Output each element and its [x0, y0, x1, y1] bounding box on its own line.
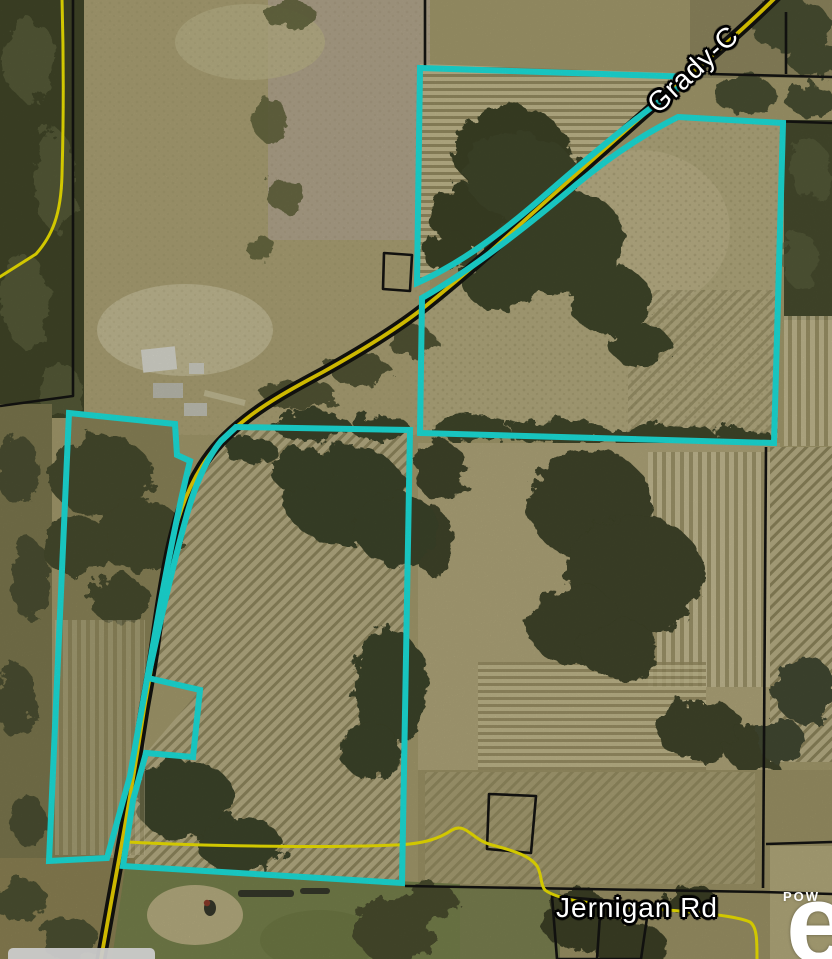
map-viewport[interactable]: Grady-C Jernigan Rd POW e — [0, 0, 832, 959]
map-layers — [0, 0, 832, 959]
photo-grain — [0, 0, 832, 959]
road-label-jernigan: Jernigan Rd — [556, 892, 718, 924]
esri-logo-letter: e — [786, 868, 832, 959]
map-ui-strip — [8, 948, 155, 959]
